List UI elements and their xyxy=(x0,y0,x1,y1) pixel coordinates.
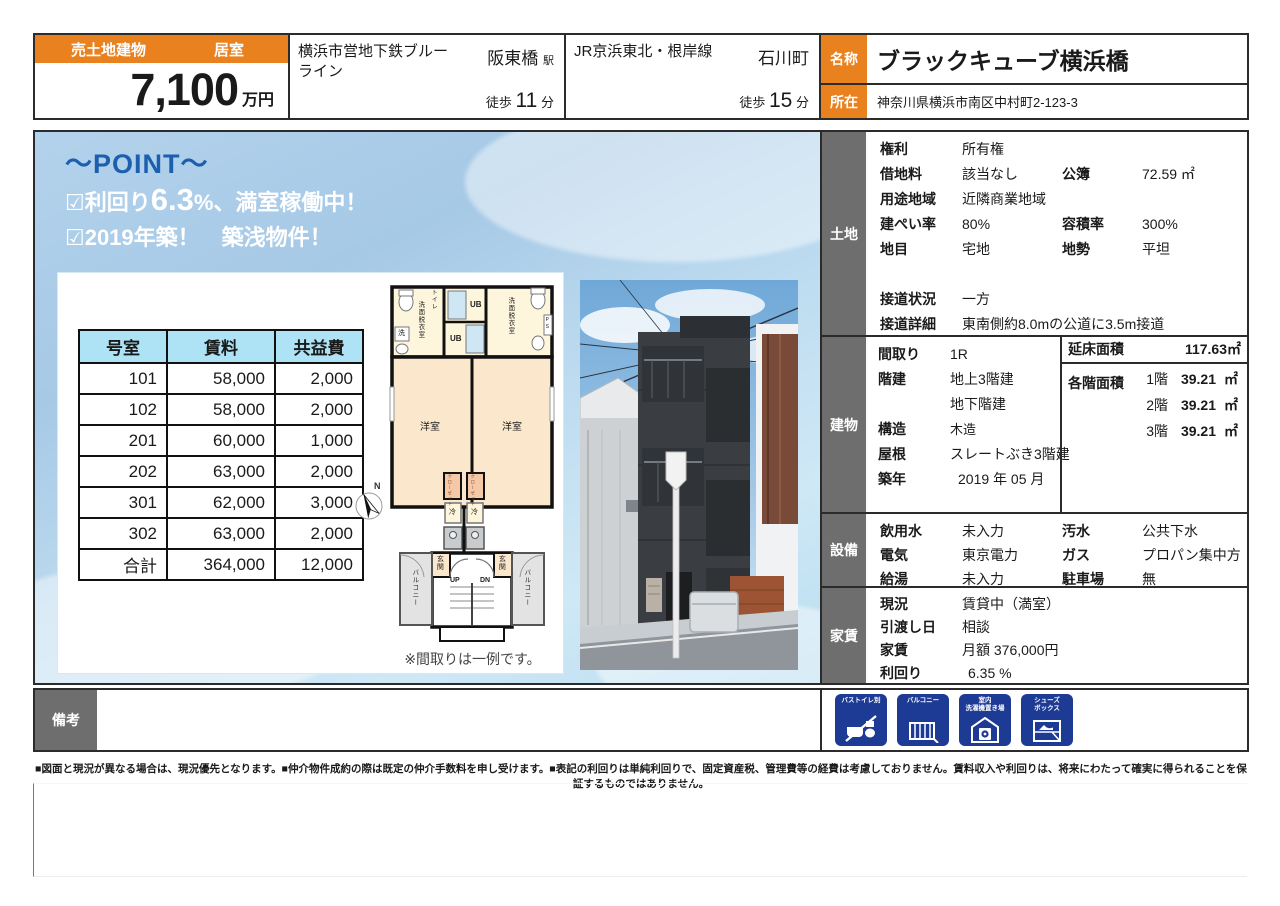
table-row: 20160,0001,000 xyxy=(79,425,363,456)
floor-area-box: 延床面積 117.63㎡ 各階面積 1階39.21㎡ 2階39.21㎡ 3階39… xyxy=(1060,337,1247,512)
structure-label: 構造 xyxy=(878,417,950,442)
compass: N xyxy=(350,479,390,530)
station-1: 阪東橋 xyxy=(487,49,538,68)
point-line1-yield: 6.3 xyxy=(151,182,194,217)
fp-ub-label: UB xyxy=(470,301,482,309)
spacer-row xyxy=(868,262,1247,287)
cell-room: 202 xyxy=(79,456,167,487)
floor-area-row: 2階39.21㎡ xyxy=(1138,392,1241,418)
cell-room: 301 xyxy=(79,487,167,518)
room-type-label: 居室 xyxy=(214,39,244,60)
zoning-label: 用途地域 xyxy=(880,187,962,212)
handover-label: 引渡し日 xyxy=(880,616,962,639)
floor-2-unit: ㎡ xyxy=(1224,392,1238,418)
indoor-laundry-icon xyxy=(970,717,1000,743)
point-title: ～POINT～ xyxy=(65,142,209,181)
balcony-label: バルコニー xyxy=(897,694,949,705)
yield-value: 6.35 % xyxy=(962,662,1247,685)
rail-line-2: JR京浜東北・根岸線 xyxy=(574,42,749,62)
walk-time-2: 徒歩 15 分 xyxy=(739,89,809,113)
building-content: 間取り1R 階建地上3階建 地下階建 構造木造 屋根スレートぶき3階建 築年20… xyxy=(868,337,1247,512)
walk-unit-2: 分 xyxy=(796,95,809,110)
header: 売土地建物 居室 7,100 万円 横浜市営地下鉄ブルーライン 阪東橋 駅 徒歩… xyxy=(33,33,1249,120)
cell-total-rent: 364,000 xyxy=(167,549,275,580)
walk-minutes-1: 11 xyxy=(516,89,538,112)
fp-closet-label: クローゼット xyxy=(470,474,475,507)
details-panel: 土地 権利所有権 借地料該当なし公簿72.59 ㎡ 用途地域近隣商業地域 建ぺい… xyxy=(822,132,1247,683)
building-photo-illustration xyxy=(580,280,798,670)
point-line1-pre: ☑利回り xyxy=(65,190,151,215)
floor-1-area: 39.21 xyxy=(1168,366,1216,392)
built-label: 築年 xyxy=(878,467,950,492)
cell-fee: 2,000 xyxy=(275,394,363,425)
fp-washroom-label: 洗面脱衣室 xyxy=(506,297,513,335)
section-rent-status: 家賃 現況賃貸中（満室） 引渡し日相談 家賃月額 376,000円 利回り6.3… xyxy=(822,588,1247,683)
name-label: 名称 xyxy=(821,35,867,83)
cell-rent: 63,000 xyxy=(167,456,275,487)
station-cell-2: JR京浜東北・根岸線 石川町 徒歩 15 分 xyxy=(566,35,821,118)
cell-fee: 2,000 xyxy=(275,363,363,394)
plan-panel: 号室 賃料 共益費 10158,0002,000 10258,0002,000 … xyxy=(57,272,564,674)
bath-toilet-label: バストイレ別 xyxy=(835,694,887,705)
cell-fee: 1,000 xyxy=(275,425,363,456)
station-suffix-1: 駅 xyxy=(543,55,554,67)
walk-label-1: 徒歩 xyxy=(486,95,512,110)
table-row: 30263,0002,000 xyxy=(79,518,363,549)
flyer-sheet: 売土地建物 居室 7,100 万円 横浜市営地下鉄ブルーライン 阪東橋 駅 徒歩… xyxy=(33,33,1249,883)
fp-washer-label: 洗 xyxy=(398,330,405,337)
showcase-panel: ～POINT～ ☑利回り6.3%、満室稼働中！ ☑2019年築！ 築浅物件！ 号… xyxy=(35,132,822,683)
facilities-content: 飲用水未入力汚水公共下水 電気東京電力ガスプロパン集中方 給湯未入力駐車場無 xyxy=(868,514,1247,586)
cell-rent: 63,000 xyxy=(167,518,275,549)
yield-label: 利回り xyxy=(880,662,962,685)
rent-th-fee: 共益費 xyxy=(275,330,363,363)
handover-value: 相談 xyxy=(962,616,1247,639)
water-label: 飲用水 xyxy=(880,519,962,543)
layout-label: 間取り xyxy=(878,342,950,367)
station-2: 石川町 xyxy=(758,49,809,68)
feature-badge-bath-toilet: バストイレ別 xyxy=(835,694,887,746)
floor-area-label: 各階面積 xyxy=(1068,373,1124,393)
far-value: 300% xyxy=(1142,212,1247,237)
cell-room: 102 xyxy=(79,394,167,425)
rights-value: 所有権 xyxy=(962,137,1247,162)
shoe-box-icon xyxy=(1032,719,1062,743)
table-row: 30162,0003,000 xyxy=(79,487,363,518)
svg-text:N: N xyxy=(374,481,381,491)
building-section-label: 建物 xyxy=(822,337,868,512)
water-value: 未入力 xyxy=(962,519,1062,543)
station-name-1: 阪東橋 駅 xyxy=(487,44,554,69)
station-cell-1: 横浜市営地下鉄ブルーライン 阪東橋 駅 徒歩 11 分 xyxy=(290,35,566,118)
land-content: 権利所有権 借地料該当なし公簿72.59 ㎡ 用途地域近隣商業地域 建ぺい率80… xyxy=(868,132,1247,335)
sale-type-label: 売土地建物 xyxy=(71,39,146,60)
floor-1-label: 1階 xyxy=(1138,366,1168,392)
walk-label-2: 徒歩 xyxy=(739,95,765,110)
fp-up-label: UP xyxy=(450,577,460,584)
remarks-label: 備考 xyxy=(35,690,97,750)
lease-label: 借地料 xyxy=(880,162,962,187)
coverage-label: 建ぺい率 xyxy=(880,212,962,237)
cell-total-fee: 12,000 xyxy=(275,549,363,580)
cell-room: 101 xyxy=(79,363,167,394)
floors-below-value: 地下階建 xyxy=(950,392,1064,417)
station-name-2: 石川町 xyxy=(758,44,809,69)
fp-balcony-label: バルコニー xyxy=(410,569,417,607)
roof-label: 屋根 xyxy=(878,442,950,467)
category-value: 宅地 xyxy=(962,237,1062,262)
feature-badge-shoe-box: シューズ ボックス xyxy=(1021,694,1073,746)
monthly-rent-value: 月額 376,000円 xyxy=(962,639,1247,662)
cell-total-label: 合計 xyxy=(79,549,167,580)
gas-label: ガス xyxy=(1062,543,1142,567)
address-row: 所在 神奈川県横浜市南区中村町2-123-3 xyxy=(821,85,1247,118)
land-section-label: 土地 xyxy=(822,132,868,335)
floors-above-value: 地上3階建 xyxy=(950,367,1064,392)
gas-value: プロパン集中方 xyxy=(1142,543,1247,567)
rent-status-content: 現況賃貸中（満室） 引渡し日相談 家賃月額 376,000円 利回り6.35 % xyxy=(868,588,1247,683)
floor-2-area: 39.21 xyxy=(1168,392,1216,418)
address-label: 所在 xyxy=(821,85,867,118)
feature-badge-indoor-laundry: 室内 洗濯機置き場 xyxy=(959,694,1011,746)
point-line1-post: %、満室稼働中！ xyxy=(194,190,368,215)
name-row: 名称 ブラックキューブ横浜橋 xyxy=(821,35,1247,85)
terrain-label: 地勢 xyxy=(1062,237,1142,262)
property-name: ブラックキューブ横浜橋 xyxy=(867,35,1129,83)
cell-rent: 60,000 xyxy=(167,425,275,456)
fp-closet-label: クローゼット xyxy=(447,474,452,507)
category-label: 地目 xyxy=(880,237,962,262)
property-address: 神奈川県横浜市南区中村町2-123-3 xyxy=(867,85,1078,118)
structure-value: 木造 xyxy=(950,417,1064,442)
rent-th-room: 号室 xyxy=(79,330,167,363)
property-flyer: { "header": { "sale_type": "売土地建物", "roo… xyxy=(0,0,1280,906)
fp-room-label: 洋室 xyxy=(502,423,522,434)
coverage-value: 80% xyxy=(962,212,1062,237)
balcony-icon xyxy=(907,717,939,743)
built-value: 2019 年 05 月 xyxy=(950,467,1064,492)
identity-cell: 名称 ブラックキューブ横浜橋 所在 神奈川県横浜市南区中村町2-123-3 xyxy=(821,35,1247,118)
rights-label: 権利 xyxy=(880,137,962,162)
status-value: 賃貸中（満室） xyxy=(962,593,1247,616)
roof-value: スレートぶき3階建 xyxy=(950,442,1070,467)
section-facilities: 設備 飲用水未入力汚水公共下水 電気東京電力ガスプロパン集中方 給湯未入力駐車場… xyxy=(822,514,1247,588)
layout-value: 1R xyxy=(950,342,1064,367)
floors-label: 階建 xyxy=(878,367,950,392)
far-label: 容積率 xyxy=(1062,212,1142,237)
floor-3-area: 39.21 xyxy=(1168,418,1216,444)
section-building: 建物 間取り1R 階建地上3階建 地下階建 構造木造 屋根スレートぶき3階建 築… xyxy=(822,337,1247,514)
sewage-label: 汚水 xyxy=(1062,519,1142,543)
walk-time-1: 徒歩 11 分 xyxy=(486,89,554,113)
road-detail-label: 接道詳細 xyxy=(880,312,962,337)
property-type-band: 売土地建物 居室 xyxy=(35,35,288,63)
floor-plan: トイレ 洗面脱衣室 洗 UB UB 洗面脱衣室 PS 洋室 洋室 クローゼット … xyxy=(386,277,558,643)
total-area-label: 延床面積 xyxy=(1068,339,1124,359)
rent-section-label: 家賃 xyxy=(822,588,868,683)
section-land: 土地 権利所有権 借地料該当なし公簿72.59 ㎡ 用途地域近隣商業地域 建ぺい… xyxy=(822,132,1247,337)
point-line-2: ☑2019年築！ 築浅物件！ xyxy=(65,220,332,252)
registry-value: 72.59 ㎡ xyxy=(1142,162,1247,187)
remarks-row: 備考 バストイレ別 バルコニー xyxy=(33,688,1249,752)
price-unit: 万円 xyxy=(242,86,274,110)
feature-icons: バストイレ別 バルコニー xyxy=(820,690,1247,750)
price-value: 7,100 xyxy=(130,65,238,115)
rail-line-1: 横浜市営地下鉄ブルーライン xyxy=(298,42,458,81)
monthly-rent-label: 家賃 xyxy=(880,639,962,662)
floor-2-label: 2階 xyxy=(1138,392,1168,418)
floor-plan-note: ※間取りは一例です。 xyxy=(380,649,565,669)
table-row: 10258,0002,000 xyxy=(79,394,363,425)
facilities-section-label: 設備 xyxy=(822,514,868,586)
rent-table-header: 号室 賃料 共益費 xyxy=(79,330,363,363)
cell-rent: 58,000 xyxy=(167,394,275,425)
compass-icon: N xyxy=(350,479,390,525)
indoor-laundry-label: 室内 洗濯機置き場 xyxy=(959,694,1011,713)
feature-badge-balcony: バルコニー xyxy=(897,694,949,746)
table-row: 10158,0002,000 xyxy=(79,363,363,394)
bath-toilet-separate-icon xyxy=(845,715,877,743)
walk-minutes-2: 15 xyxy=(769,89,792,112)
main-area: ～POINT～ ☑利回り6.3%、満室稼働中！ ☑2019年築！ 築浅物件！ 号… xyxy=(33,130,1249,685)
rent-total-row: 合計364,00012,000 xyxy=(79,549,363,580)
rent-table: 号室 賃料 共益費 10158,0002,000 10258,0002,000 … xyxy=(78,329,364,581)
fp-ps-label: PS xyxy=(544,317,549,331)
fp-fridge-label: 冷 xyxy=(449,509,456,516)
floor-3-unit: ㎡ xyxy=(1224,418,1238,444)
electric-label: 電気 xyxy=(880,543,962,567)
sewage-value: 公共下水 xyxy=(1142,519,1247,543)
point-line-1: ☑利回り6.3%、満室稼働中！ xyxy=(65,182,367,218)
remarks-body xyxy=(97,690,820,750)
fp-room-label: 洋室 xyxy=(420,423,440,434)
registry-label: 公簿 xyxy=(1062,162,1142,187)
cloud-decoration xyxy=(465,132,822,262)
rent-th-rent: 賃料 xyxy=(167,330,275,363)
fp-ub-label: UB xyxy=(450,335,462,343)
property-photo xyxy=(580,280,798,670)
total-area-value: 117.63㎡ xyxy=(1185,339,1241,359)
empty-notes-box xyxy=(33,783,1247,877)
price: 7,100 万円 xyxy=(35,63,288,115)
cell-rent: 58,000 xyxy=(167,363,275,394)
floors-blank-label xyxy=(878,392,950,417)
status-label: 現況 xyxy=(880,593,962,616)
lease-value: 該当なし xyxy=(962,162,1062,187)
fp-entrance-label: 玄関 xyxy=(436,555,443,571)
electric-value: 東京電力 xyxy=(962,543,1062,567)
floor-area-row: 3階39.21㎡ xyxy=(1138,418,1241,444)
fp-fridge-label: 冷 xyxy=(471,509,478,516)
cell-rent: 62,000 xyxy=(167,487,275,518)
floor-3-label: 3階 xyxy=(1138,418,1168,444)
fp-dn-label: DN xyxy=(480,577,490,584)
floor-area-row: 1階39.21㎡ xyxy=(1138,366,1241,392)
fp-washroom-label: 洗面脱衣室 xyxy=(416,301,423,339)
shoe-box-label: シューズ ボックス xyxy=(1021,694,1073,713)
road-detail-value: 東南側約8.0mの公道に3.5m接道 xyxy=(962,312,1247,337)
road-label: 接道状況 xyxy=(880,287,962,312)
table-row: 20263,0002,000 xyxy=(79,456,363,487)
cell-room: 201 xyxy=(79,425,167,456)
fp-toilet-label: トイレ xyxy=(430,289,436,310)
fp-entrance-label: 玄関 xyxy=(498,555,505,571)
zoning-value: 近隣商業地域 xyxy=(962,187,1247,212)
walk-unit-1: 分 xyxy=(541,95,554,110)
terrain-value: 平坦 xyxy=(1142,237,1247,262)
road-value: 一方 xyxy=(962,287,1247,312)
floor-1-unit: ㎡ xyxy=(1224,366,1238,392)
fp-balcony-label: バルコニー xyxy=(522,569,529,607)
cell-room: 302 xyxy=(79,518,167,549)
price-cell: 売土地建物 居室 7,100 万円 xyxy=(35,35,290,118)
